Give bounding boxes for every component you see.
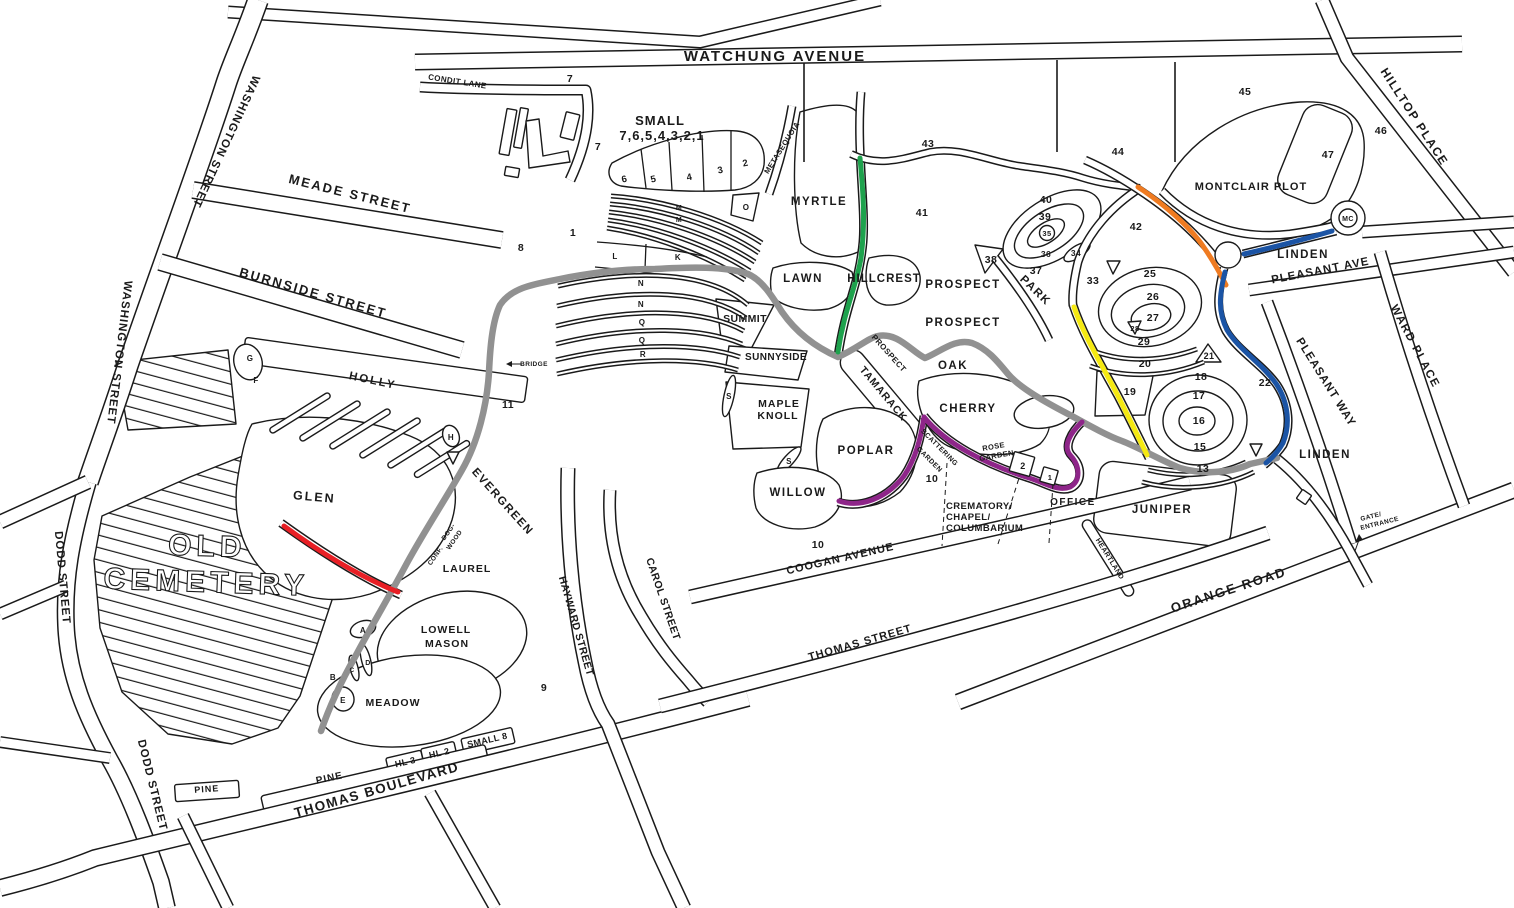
building (504, 166, 519, 177)
label-num-17: 17 (1193, 390, 1205, 402)
label-letter-r: R (640, 350, 646, 359)
label-road-evergreen: EVERGREEN (469, 466, 535, 538)
label-num-21: 21 (1204, 351, 1215, 361)
label-letter-m2: M (676, 217, 682, 224)
label-num-34: 34 (1071, 248, 1081, 258)
label-num-27: 27 (1147, 312, 1159, 324)
label-num-18: 18 (1195, 371, 1207, 383)
label-num-38: 38 (985, 254, 997, 266)
label-letter-h: H (448, 433, 454, 442)
label-letter-b: B (330, 673, 336, 682)
label-letter-o: O (743, 203, 750, 212)
label-section-knoll: KNOLL (757, 410, 798, 422)
label-label-mc: MC (1342, 216, 1354, 223)
street-mc-east-fill (1362, 222, 1514, 232)
label-num-13: 13 (1197, 463, 1209, 475)
label-bridge: BRIDGE (520, 361, 548, 368)
label-letter-a: A (360, 626, 366, 635)
label-section-juniper: JUNIPER (1132, 504, 1192, 516)
label-num-47: 47 (1322, 149, 1334, 161)
label-num-35: 35 (1042, 229, 1051, 238)
label-letter-l: L (612, 252, 617, 261)
label-num-22: 22 (1259, 377, 1271, 389)
label-old-cemetery-1: OLD (168, 529, 247, 565)
street-hayward-fill (568, 468, 684, 908)
label-num-1: 1 (570, 227, 576, 239)
gate-arrowhead (1356, 534, 1363, 541)
label-num-36: 36 (1041, 249, 1051, 259)
label-letter-q2: Q (639, 336, 646, 345)
label-num-40: 40 (1040, 194, 1052, 206)
label-num-box-2: 2 (1020, 461, 1025, 471)
label-small-numbers: 7,6,5,4,3,2,1 (619, 128, 704, 143)
label-num-16: 16 (1193, 415, 1205, 427)
label-small-title: SMALL (635, 113, 685, 128)
building (499, 108, 517, 155)
label-section-mason: MASON (425, 638, 469, 650)
label-num-11: 11 (502, 399, 514, 411)
label-num-7a: 7 (567, 73, 573, 85)
label-section-poplar: POPLAR (838, 445, 895, 457)
label-num-10b: 10 (812, 539, 824, 551)
label-num-43: 43 (922, 138, 934, 150)
building (560, 112, 580, 141)
label-section-sunnyside: SUNNYSIDE (745, 352, 807, 363)
label-section-hillcrest: HILLCREST (847, 273, 921, 285)
street-topleft-fill (228, 0, 880, 42)
label-num-28: 28 (1130, 324, 1139, 333)
label-letter-s2: S (786, 457, 792, 466)
strip-r-bottom-casing (557, 361, 738, 374)
lawn-section (771, 262, 854, 310)
label-section-laurel: LAUREL (443, 563, 492, 575)
street-watchung-fill (415, 44, 1462, 62)
label-letter-n1: N (638, 279, 644, 288)
street-left-in2-fill (0, 586, 66, 614)
label-num-15: 15 (1194, 441, 1206, 453)
label-num-9: 9 (541, 682, 547, 694)
triangle-marker-linden (1250, 444, 1262, 456)
label-num-45: 45 (1239, 86, 1251, 98)
label-num-41: 41 (916, 207, 928, 219)
label-letter-s1: S (726, 392, 732, 401)
street-ward-fill (1380, 252, 1464, 506)
label-letter-f: F (253, 376, 258, 385)
strip-lk-divider (645, 244, 646, 269)
label-section-maple: MAPLE (758, 398, 800, 410)
street-burnside-fill (160, 262, 462, 350)
label-section-prospect-2: PROSPECT (925, 317, 1000, 329)
label-num-box-1: 1 (1048, 473, 1053, 482)
label-section-cherry: CHERRY (939, 403, 996, 415)
label-num-19: 19 (1124, 386, 1136, 398)
label-num-33: 33 (1087, 275, 1099, 287)
label-letter-q1: Q (639, 318, 646, 327)
label-num-10a: 10 (926, 473, 938, 485)
label-section-lowell: LOWELL (421, 624, 471, 636)
label-num-26: 26 (1147, 291, 1159, 303)
label-heartland: HEARTLAND (1094, 537, 1125, 581)
label-section-linden-upper: LINDEN (1277, 249, 1329, 261)
triangle-marker-33 (1107, 261, 1120, 274)
label-office: OFFICE (1050, 497, 1096, 508)
label-letter-g: G (247, 354, 254, 363)
label-section-montclair-plot: MONTCLAIR PLOT (1195, 181, 1307, 193)
label-num-25: 25 (1144, 268, 1156, 280)
label-street-watchung-avenue: WATCHUNG AVENUE (684, 48, 866, 65)
label-section-summit: SUMMIT (723, 313, 767, 325)
label-letter-m1: M (676, 205, 682, 212)
label-num-29: 29 (1138, 336, 1150, 348)
label-num-44: 44 (1112, 146, 1124, 158)
label-num-42: 42 (1130, 221, 1142, 233)
label-crematory-2: CHAPEL/ (946, 512, 991, 523)
label-section-pine-box: PINE (194, 783, 220, 795)
label-num-39: 39 (1039, 211, 1051, 223)
label-crematory-1: CREMATORY/ (946, 501, 1013, 512)
label-num-7b: 7 (595, 141, 601, 153)
label-num-20: 20 (1139, 358, 1151, 370)
label-section-myrtle: MYRTLE (791, 196, 847, 208)
label-letter-c: C (349, 667, 354, 674)
label-num-46: 46 (1375, 125, 1387, 137)
label-crematory-3: COLUMBARIUM (946, 523, 1023, 534)
label-section-lawn: LAWN (783, 273, 823, 285)
label-num-37: 37 (1030, 265, 1042, 277)
bridge-arrowhead (506, 361, 512, 367)
label-section-willow: WILLOW (770, 487, 827, 499)
cemetery-map: WATCHUNG AVENUECONDIT LANEWASHINGTON STR… (0, 0, 1514, 908)
cemetery-map-page: WATCHUNG AVENUECONDIT LANEWASHINGTON STR… (0, 0, 1514, 908)
street-pleasant-way-fill (1267, 302, 1351, 544)
label-num-8: 8 (518, 242, 524, 254)
label-letter-e: E (340, 696, 346, 705)
label-letter-n2: N (638, 300, 644, 309)
label-section-meadow: MEADOW (366, 697, 421, 709)
label-section-linden-lower: LINDEN (1299, 449, 1351, 461)
label-section-oak: OAK (938, 360, 968, 372)
label-letter-d: D (365, 660, 370, 667)
roundabout (1215, 242, 1241, 268)
label-letter-k: K (675, 253, 681, 262)
label-section-prospect-1: PROSPECT (925, 279, 1000, 291)
street-bottom-v2-fill (430, 793, 495, 908)
